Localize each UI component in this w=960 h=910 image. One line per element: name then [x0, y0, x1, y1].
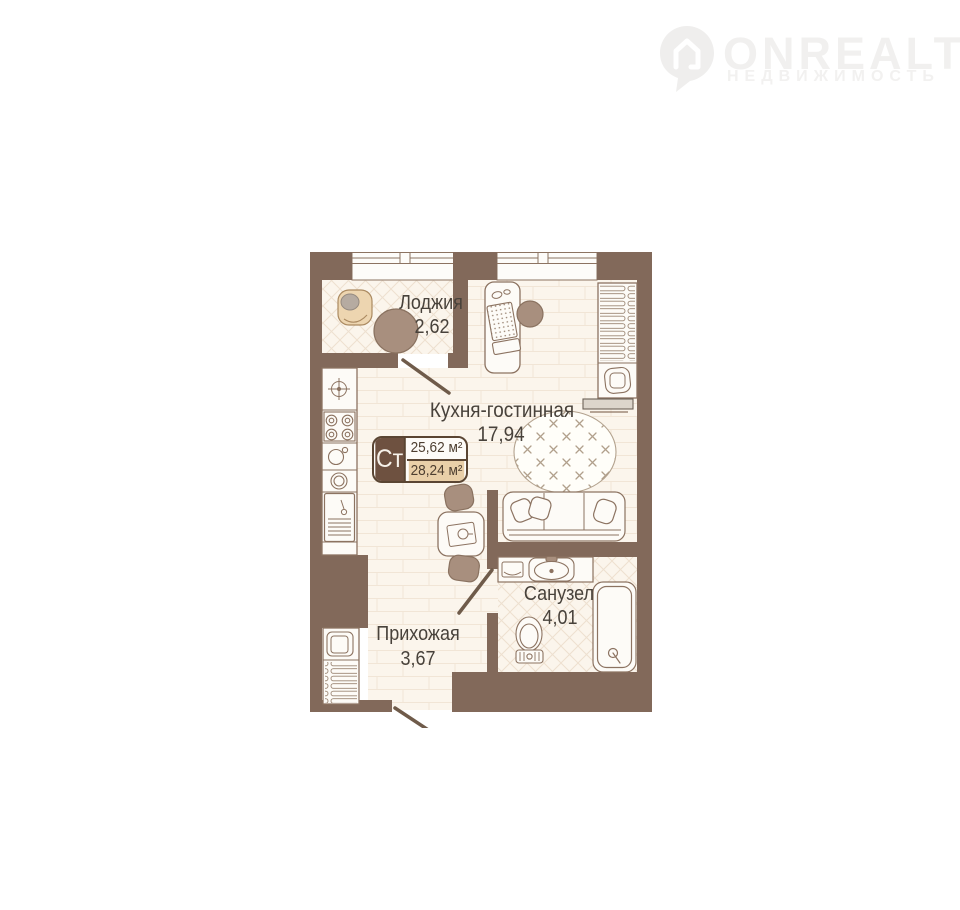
apartment-type-label: Ст	[375, 438, 405, 481]
kitchen-sink	[325, 494, 355, 542]
entrance-door	[395, 708, 445, 728]
room-area-hallway: 3,67	[400, 648, 435, 671]
apartment-areas: 25,62 м² 28,24 м²	[407, 438, 466, 481]
stove	[324, 412, 355, 441]
room-area-kitchen-living: 17,94	[477, 423, 524, 447]
dining-chair-top	[443, 483, 475, 512]
floorplan	[310, 252, 652, 728]
carpet	[514, 411, 616, 493]
living-wardrobe	[598, 283, 637, 398]
balcony-window	[352, 253, 455, 281]
apartment-type-badge: Ст 25,62 м² 28,24 м²	[372, 436, 468, 483]
dining-chair-bottom	[447, 554, 480, 583]
office-chair	[517, 301, 543, 327]
room-label-hallway: Прихожая	[376, 623, 459, 646]
room-area-balcony: 2,62	[414, 316, 449, 339]
sofa	[503, 492, 625, 541]
balcony-table	[374, 309, 418, 353]
hall-wardrobe	[323, 628, 359, 704]
logo-pin-icon	[650, 24, 722, 94]
toilet	[516, 617, 543, 663]
floorplan-page: ONREALT НЕДВИЖИМОСТЬ	[0, 0, 960, 910]
room-label-bathroom: Санузел	[524, 583, 594, 606]
armchair	[338, 290, 372, 325]
logo-subtitle-text: НЕДВИЖИМОСТЬ	[727, 68, 940, 86]
room-label-balcony: Лоджия	[399, 292, 463, 315]
bathtub	[593, 582, 636, 672]
area-with-balcony: 28,24 м²	[409, 461, 464, 482]
room-area-bathroom: 4,01	[542, 607, 577, 630]
kitchen-unit	[322, 368, 357, 555]
bathroom-sink	[529, 557, 574, 582]
dining-table	[438, 512, 484, 556]
entrance-floor	[392, 700, 452, 710]
living-window	[497, 253, 597, 281]
room-label-kitchen-living: Кухня-гостинная	[430, 399, 574, 423]
area-total: 25,62 м²	[409, 438, 464, 459]
